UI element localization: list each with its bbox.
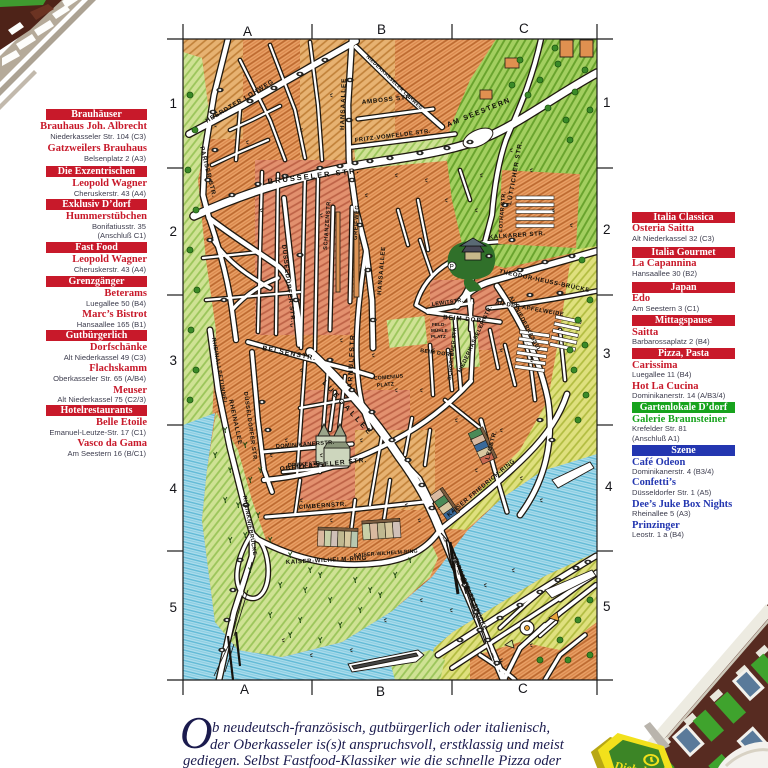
svg-text:PLATZ: PLATZ xyxy=(431,334,446,339)
svg-text:5: 5 xyxy=(169,600,177,615)
svg-text:C: C xyxy=(518,681,528,696)
svg-text:3: 3 xyxy=(169,353,177,368)
svg-text:1: 1 xyxy=(603,95,611,110)
svg-text:A: A xyxy=(243,24,252,39)
svg-text:C: C xyxy=(519,21,529,36)
svg-text:2: 2 xyxy=(169,224,177,239)
svg-text:B: B xyxy=(376,684,385,699)
svg-text:4: 4 xyxy=(169,481,177,496)
svg-text:2: 2 xyxy=(603,222,611,237)
svg-text:MÜHLE: MÜHLE xyxy=(431,327,448,333)
svg-text:1: 1 xyxy=(169,96,177,111)
svg-text:FELD-: FELD- xyxy=(432,322,446,327)
svg-text:P: P xyxy=(450,264,454,271)
svg-text:A: A xyxy=(240,682,249,697)
svg-text:B: B xyxy=(377,22,386,37)
svg-text:3: 3 xyxy=(603,346,611,361)
svg-text:4: 4 xyxy=(605,479,613,494)
